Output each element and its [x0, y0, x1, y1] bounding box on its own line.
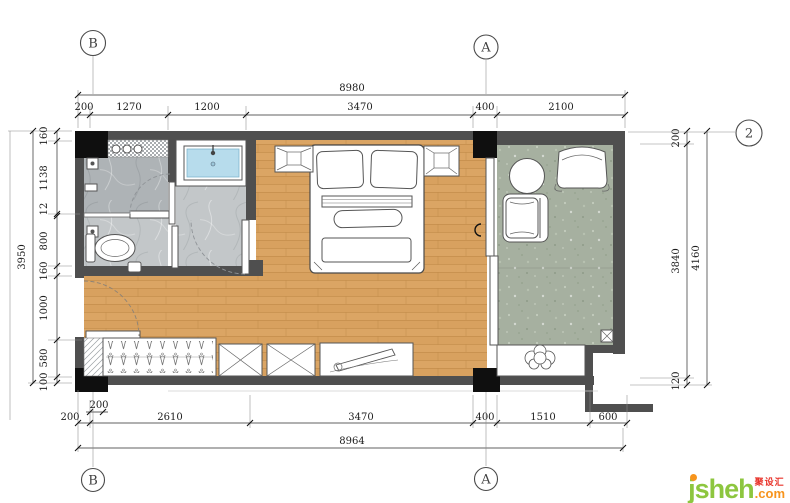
sliding-panel [172, 226, 178, 268]
bolster-cushion [334, 209, 402, 228]
dim-label: 100 [39, 372, 50, 391]
tv-console [320, 343, 413, 376]
dim-label: 200 [671, 128, 682, 147]
dim-top: 8980 200 1270 1200 3470 400 2100 [74, 83, 628, 130]
dim-label: 580 [39, 348, 50, 367]
grid-label: A [480, 473, 491, 488]
bed [310, 145, 424, 273]
shower-mixer-dot [91, 162, 95, 166]
dim-label: 400 [475, 102, 494, 113]
glass-panel-2 [490, 256, 498, 345]
pillow-left [316, 150, 363, 189]
dim-label: 1138 [39, 165, 50, 190]
shower-handle-icon [85, 184, 97, 191]
dim-label: 8964 [339, 436, 364, 447]
dim-label: 400 [475, 412, 494, 423]
planter-box [497, 345, 585, 376]
cabinet-x2 [267, 344, 315, 376]
nightstand-left [275, 146, 313, 172]
floorplan-canvas: 8980 200 1270 1200 3470 400 2100 200 200… [0, 0, 790, 503]
dim-right: 200 3840 120 4160 [630, 128, 712, 391]
dim-label: 3950 [17, 244, 28, 269]
dim-label: 2100 [548, 102, 573, 113]
waste-bin [128, 262, 141, 272]
grid-label: B [88, 474, 98, 489]
watermark-tld: .com [755, 487, 785, 500]
bathroom-door-leaf [242, 220, 249, 274]
column-bottom-middle [473, 368, 500, 392]
dim-label: 200 [89, 400, 108, 411]
dim-label: 1000 [39, 295, 50, 320]
dim-label: 800 [39, 231, 50, 250]
watermark-logo: jsheh 聚设汇 .com [688, 478, 785, 500]
wardrobe [84, 338, 216, 376]
dim-label: 1510 [530, 412, 555, 423]
faucet-dot [211, 151, 215, 155]
grid-label: B [88, 37, 98, 52]
dim-label: 160 [39, 126, 50, 145]
grid-label: A [480, 41, 491, 56]
hatch-cabinet [84, 338, 103, 376]
dim-label: 3470 [348, 412, 373, 423]
dim-label: 1270 [116, 102, 141, 113]
duvet-fold [322, 196, 412, 207]
dim-label: 8980 [339, 83, 364, 94]
dim-label: 120 [671, 371, 682, 390]
grid-label: 2 [745, 127, 753, 142]
round-side-table [510, 159, 545, 194]
bed-runner [322, 238, 411, 262]
column-top-left [75, 131, 108, 158]
glass-panel-1 [486, 158, 494, 256]
shaft-wall-left [585, 345, 593, 412]
dim-label: 2610 [157, 412, 182, 423]
dim-bottom: 200 200 2610 3470 400 1510 600 8964 [60, 390, 630, 452]
pipe-icon [112, 145, 120, 153]
armchair [555, 147, 609, 191]
nightstand-right [424, 146, 459, 176]
dim-label: 4160 [691, 245, 702, 270]
shower-door-leaf [130, 211, 170, 218]
toilet-tank [86, 234, 95, 262]
pillow-right [370, 150, 417, 189]
dim-label: 1200 [194, 102, 219, 113]
cabinet-x1 [219, 344, 262, 376]
pipe-icon [123, 145, 131, 153]
floor-drain [601, 330, 613, 342]
lounge-chair [503, 194, 548, 242]
dim-label: 3470 [347, 102, 372, 113]
dim-label: 160 [39, 261, 50, 280]
dim-label: 200 [60, 412, 79, 423]
spray-gun-dot [91, 230, 95, 234]
dim-left: 3950 160 1138 12 800 160 1000 580 100 [8, 126, 82, 420]
dim-label: 3840 [671, 248, 682, 273]
column-top-middle [473, 131, 497, 158]
dim-label: 600 [598, 412, 617, 423]
dim-label: 12 [39, 203, 50, 216]
watermark-brand: jsheh [688, 479, 754, 500]
floor-plan: 8980 200 1270 1200 3470 400 2100 200 200… [0, 0, 790, 503]
dim-label: 200 [74, 102, 93, 113]
sliding-panel [169, 182, 175, 224]
basin-drain [211, 162, 215, 166]
shaft-wall-bottom [585, 404, 653, 412]
pipe-icon [134, 145, 142, 153]
